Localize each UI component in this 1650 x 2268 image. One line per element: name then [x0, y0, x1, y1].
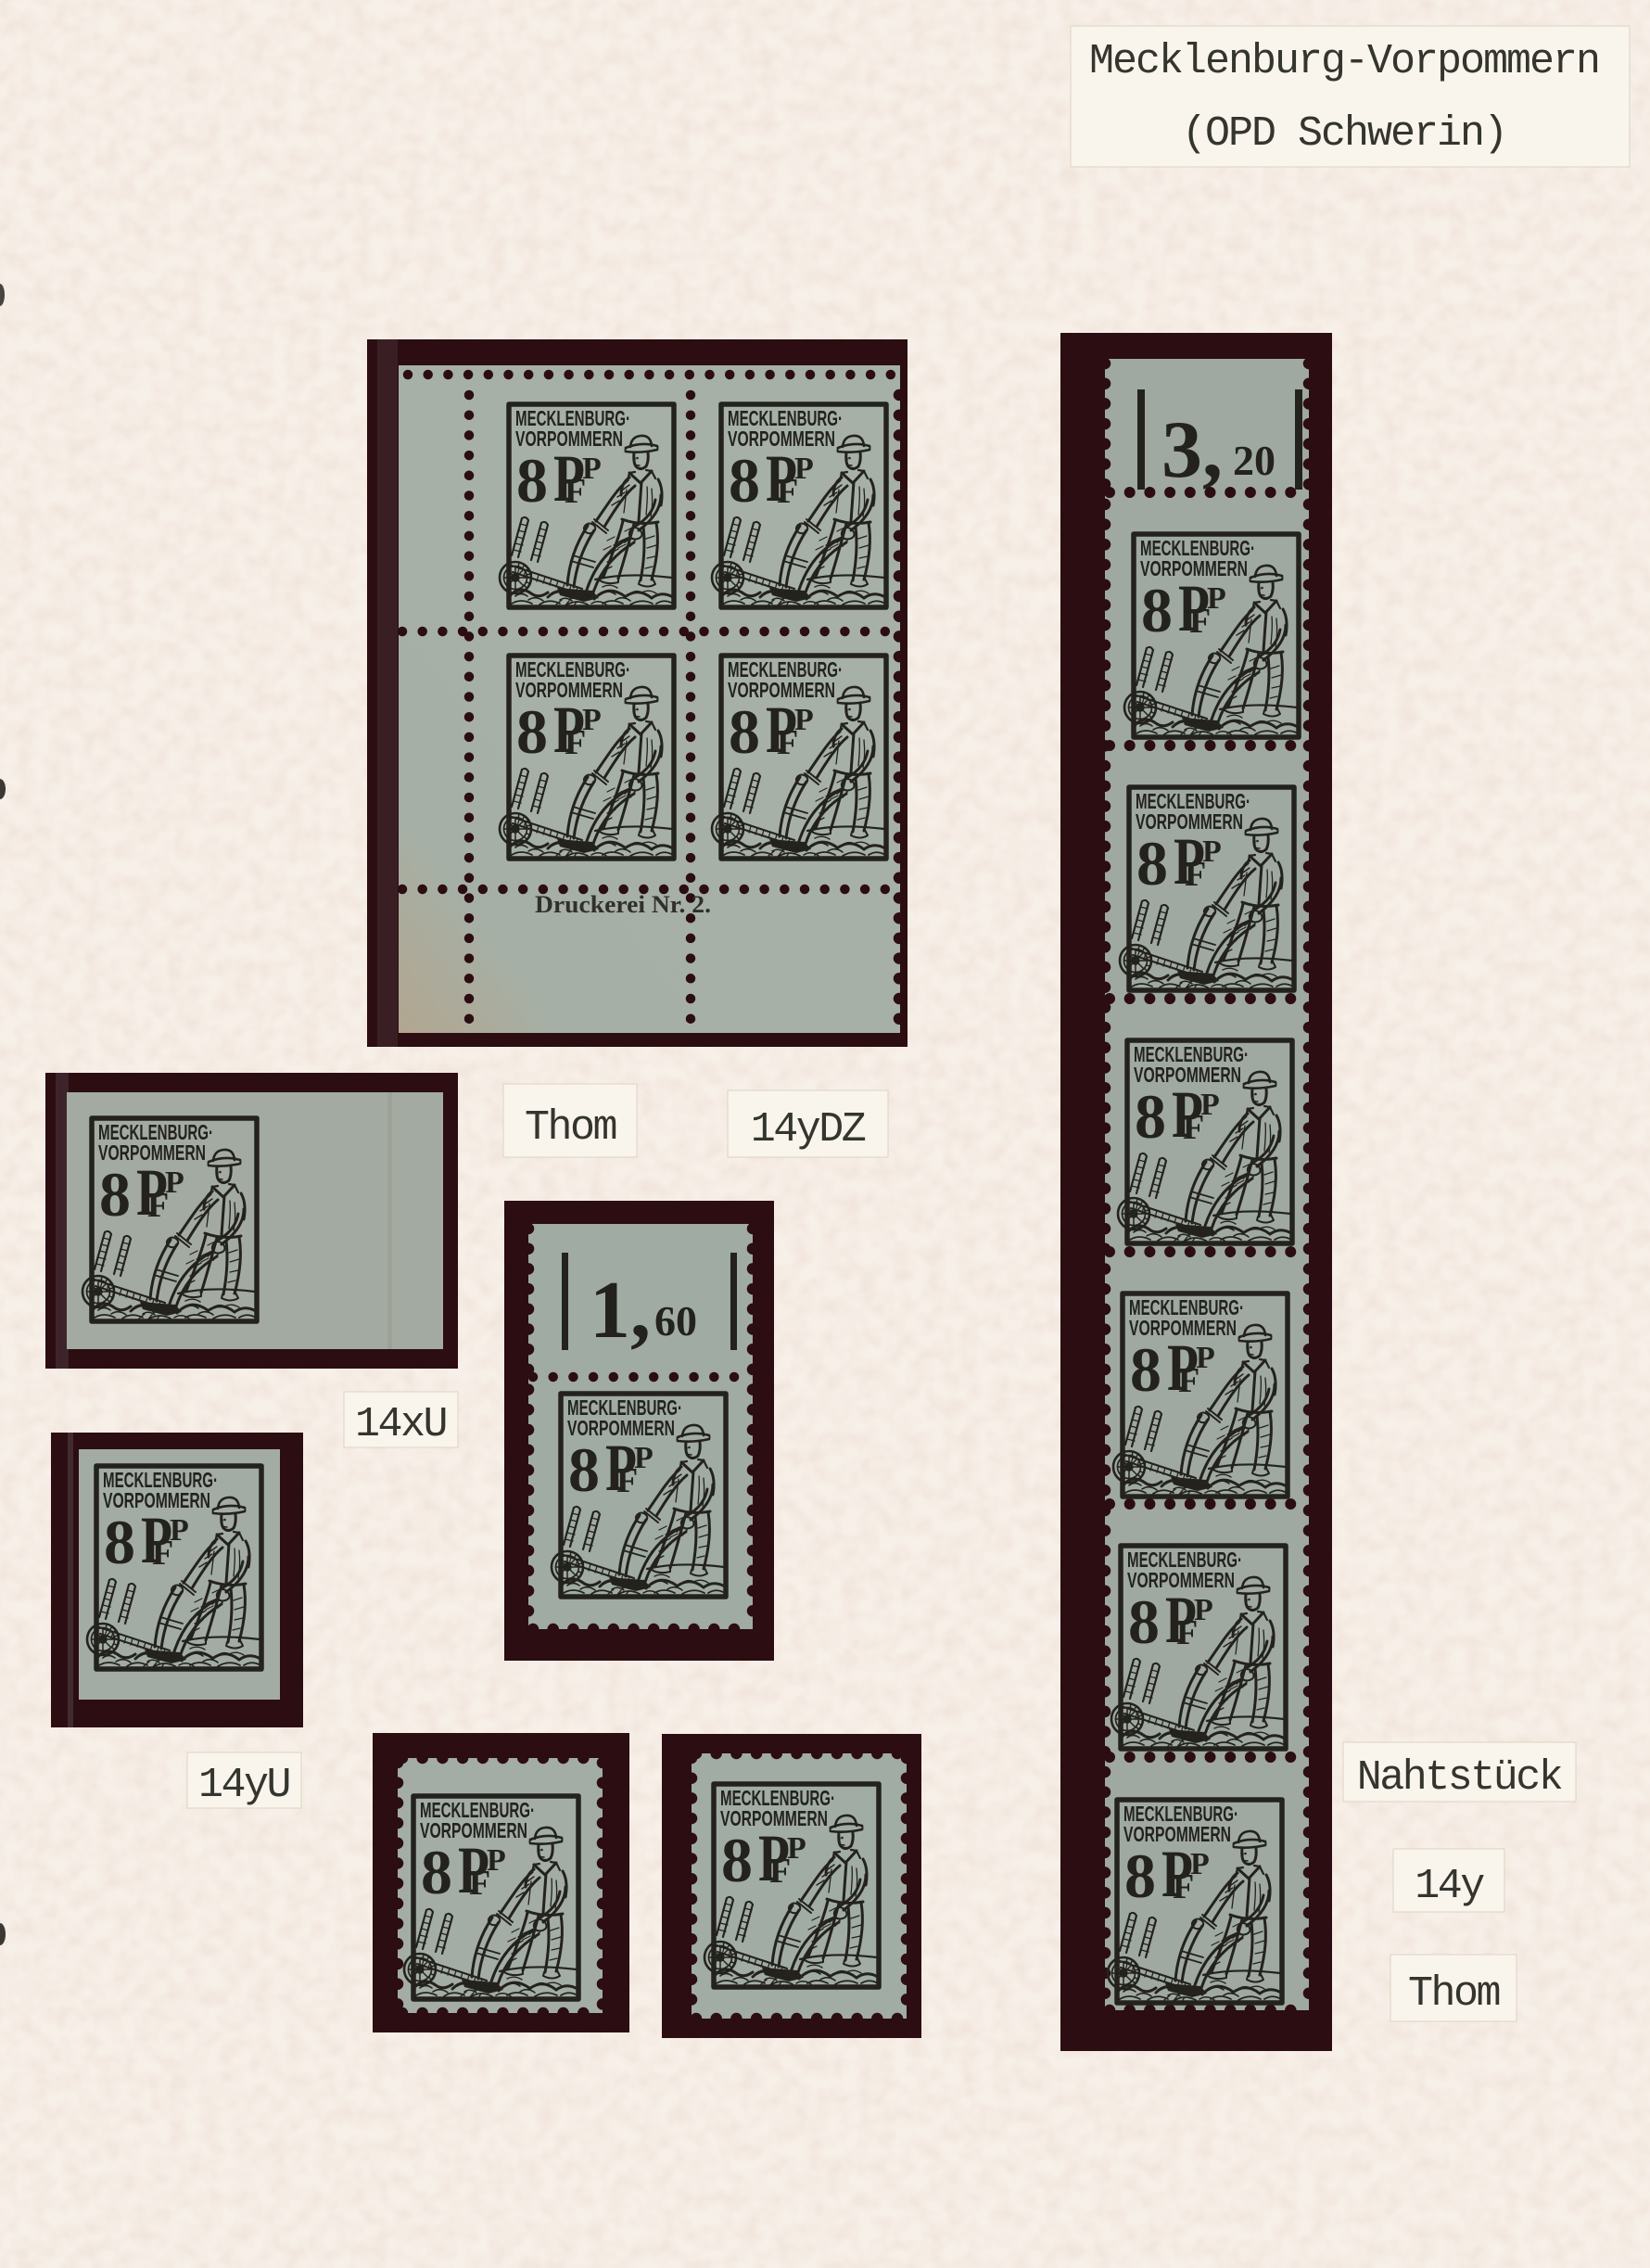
svg-text:Thom: Thom [1408, 1970, 1500, 2018]
svg-text:Thom: Thom [525, 1104, 616, 1152]
svg-text:14y: 14y [1415, 1863, 1484, 1910]
svg-text:Nahtstück: Nahtstück [1357, 1754, 1562, 1802]
svg-text:60: 60 [654, 1297, 697, 1344]
svg-text:14yDZ: 14yDZ [751, 1106, 866, 1153]
svg-text:Mecklenburg-Vorpommern: Mecklenburg-Vorpommern [1089, 38, 1599, 85]
svg-text:Druckerei Nr. 2.: Druckerei Nr. 2. [535, 891, 711, 918]
svg-text:20: 20 [1233, 437, 1276, 484]
svg-text:1,: 1, [590, 1266, 651, 1356]
svg-text:(OPD Schwerin): (OPD Schwerin) [1182, 110, 1506, 158]
svg-text:14xU: 14xU [355, 1401, 446, 1448]
svg-text:14yU: 14yU [198, 1762, 289, 1809]
svg-text:3,: 3, [1161, 405, 1223, 495]
